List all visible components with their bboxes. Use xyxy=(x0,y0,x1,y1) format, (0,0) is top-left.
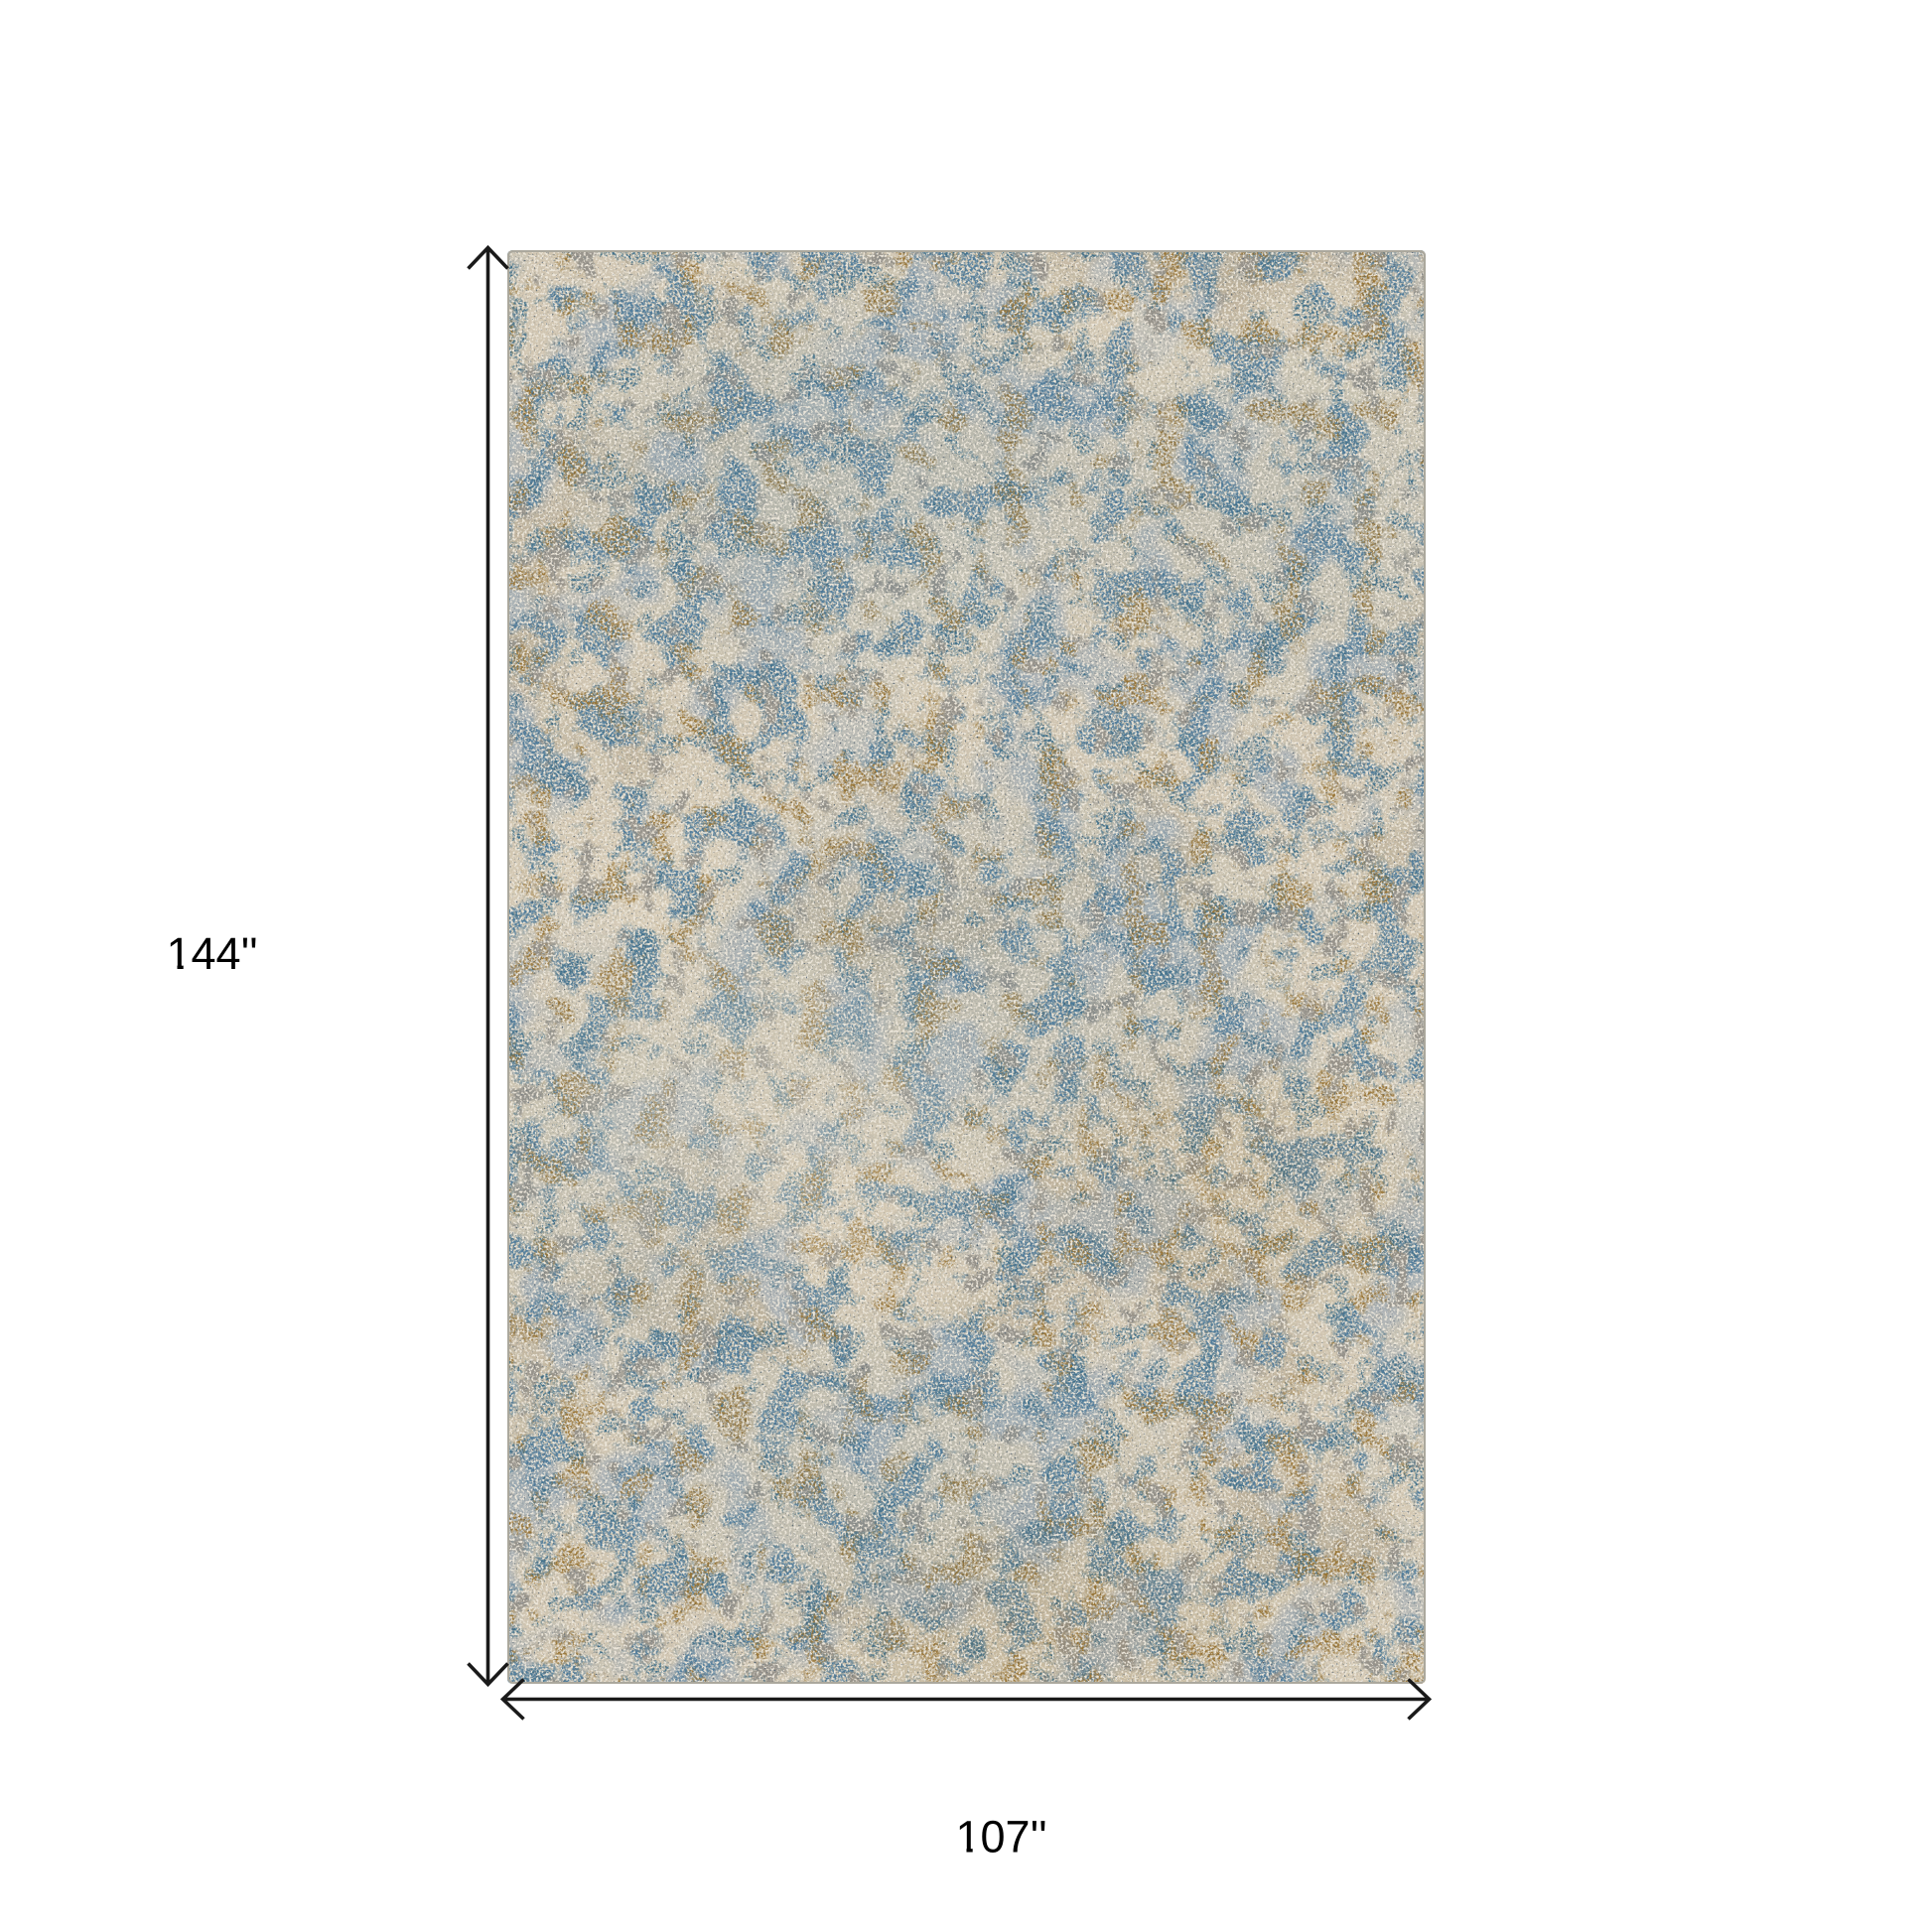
svg-text:144'': 144'' xyxy=(167,928,258,979)
svg-text:107'': 107'' xyxy=(956,1812,1047,1863)
